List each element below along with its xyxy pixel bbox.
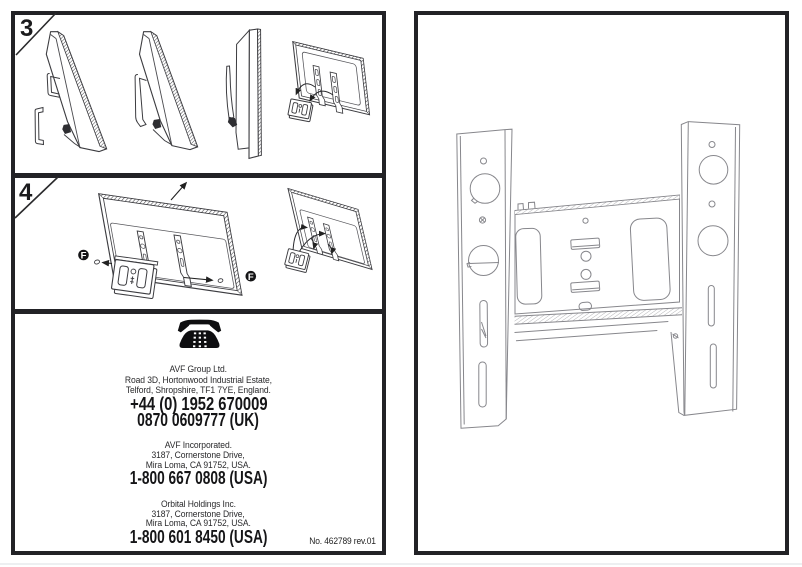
svg-text:F: F — [81, 251, 87, 262]
svg-text:F: F — [248, 272, 254, 283]
